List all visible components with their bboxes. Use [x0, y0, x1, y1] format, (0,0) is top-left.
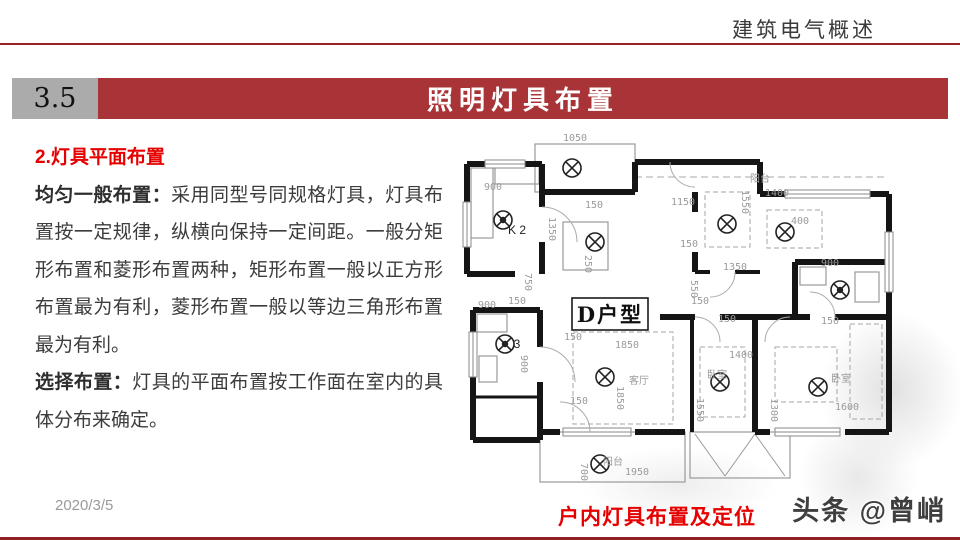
dimension-label: 1400 — [729, 350, 753, 361]
dimension-label: 900 — [478, 300, 496, 311]
paragraph-label: 选择布置： — [35, 372, 132, 393]
page-header-title: 建筑电气概述 — [732, 14, 876, 44]
slide-date: 2020/3/5 — [55, 497, 113, 514]
dimension-label: 400 — [791, 216, 809, 227]
dimension-label: 150 — [564, 332, 582, 343]
dimension-label: 1400 — [765, 188, 789, 199]
dimension-label: 150 — [508, 296, 526, 307]
section-number: 3.5 — [12, 78, 98, 119]
dimension-label: 150 — [718, 314, 736, 325]
ceiling-lamp-icon — [563, 159, 581, 177]
dimension-label: 1350 — [546, 217, 557, 241]
room-label: 阳台 — [603, 455, 623, 468]
dimension-label: 1600 — [835, 402, 859, 413]
section-title: 照明灯具布置 — [98, 78, 948, 119]
dimension-label: 150 — [570, 396, 588, 407]
floorplan-svg: D户型1050900135015025011501550阳台1400400150… — [455, 132, 913, 494]
author-watermark: 头条 @曾峭 — [792, 489, 946, 528]
ceiling-lamp-icon — [586, 233, 604, 251]
paragraph-label: 均匀一般布置： — [35, 185, 171, 206]
dimension-label: 150 — [680, 239, 698, 250]
dimension-label: 900 — [518, 355, 529, 373]
dimension-label: 250 — [582, 255, 593, 273]
room-label: 阳台 — [750, 172, 770, 185]
ceiling-lamp-icon — [809, 378, 827, 396]
dimension-label: 150 — [821, 316, 839, 327]
unit-label: D户型 — [577, 302, 643, 327]
paragraph-text: 采用同型号同规格灯具，灯具布置按一定规律，纵横向保持一定间距。一般分矩形布置和菱… — [35, 185, 443, 356]
dimension-label: 1950 — [625, 467, 649, 478]
dimension-label: K 2 — [508, 223, 526, 237]
dimension-label: 1550 — [739, 190, 750, 214]
room-label: 卧室 — [707, 368, 727, 381]
ceiling-lamp-icon — [496, 335, 514, 353]
room-label: 客厅 — [629, 374, 649, 387]
body-text-column: 2.灯具平面布置 均匀一般布置：采用同型号同规格灯具，灯具布置按一定规律，纵横向… — [35, 139, 443, 439]
dimension-label: 750 — [522, 273, 533, 291]
dimension-label: 1350 — [723, 262, 747, 273]
dimension-label: 1850 — [614, 386, 625, 410]
dimension-label: 700 — [578, 463, 589, 481]
dimension-label: 1150 — [671, 197, 695, 208]
ceiling-lamp-icon — [831, 281, 849, 299]
dimension-label: 3 — [514, 337, 521, 351]
top-divider-line — [0, 43, 960, 45]
ceiling-lamp-icon — [596, 368, 614, 386]
ceiling-lamp-icon — [718, 215, 736, 233]
dimension-label: 1850 — [615, 340, 639, 351]
dimension-label: 1050 — [563, 133, 587, 144]
paragraph-uniform-layout: 均匀一般布置：采用同型号同规格灯具，灯具布置按一定规律，纵横向保持一定间距。一般… — [35, 177, 443, 365]
dimension-label: 1300 — [768, 398, 779, 422]
slide: 建筑电气概述 3.5 照明灯具布置 2.灯具平面布置 均匀一般布置：采用同型号同… — [0, 0, 960, 540]
dimension-label: 150 — [585, 200, 603, 211]
dimension-label: 150 — [691, 296, 709, 307]
room-label: 卧室 — [831, 372, 851, 385]
sub-heading: 2.灯具平面布置 — [35, 139, 443, 177]
dimension-label: 1550 — [694, 398, 705, 422]
floorplan-drawing: D户型1050900135015025011501550阳台1400400150… — [455, 132, 913, 494]
paragraph-selective-layout: 选择布置：灯具的平面布置按工作面在室内的具体分布来确定。 — [35, 364, 443, 439]
dimension-label: 900 — [484, 182, 502, 193]
floorplan-caption: 户内灯具布置及定位 — [558, 501, 756, 531]
section-bar: 3.5 照明灯具布置 — [12, 78, 948, 119]
dimension-label: 900 — [821, 258, 839, 269]
